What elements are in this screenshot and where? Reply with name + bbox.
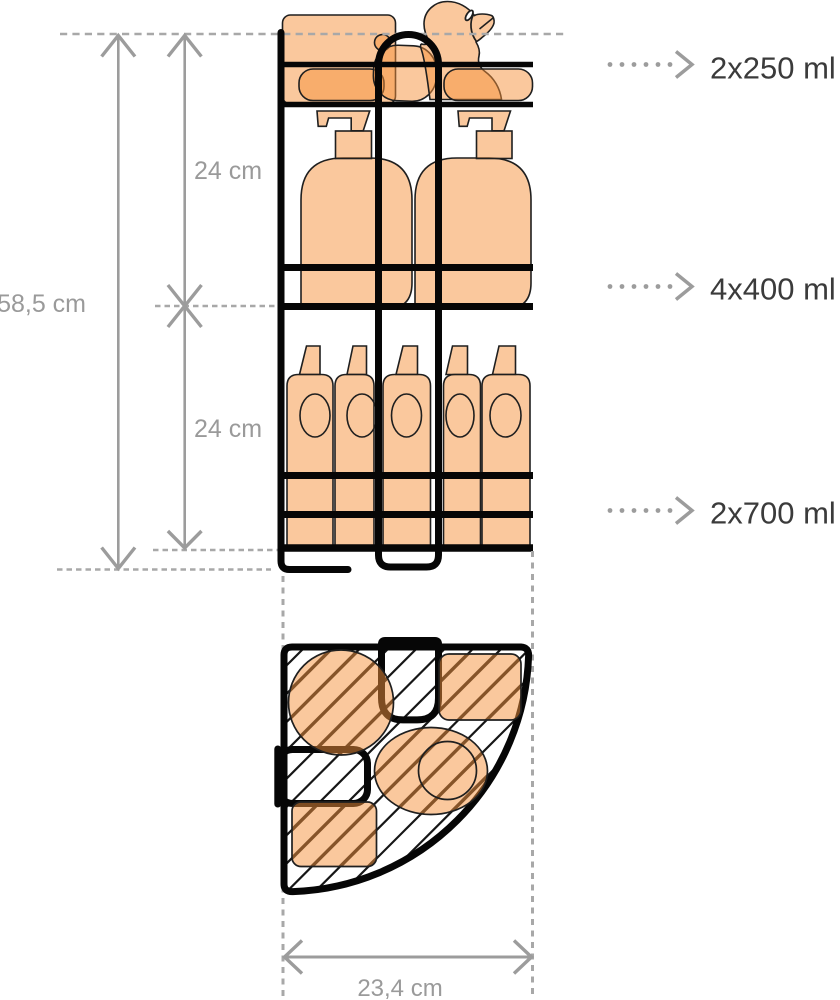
svg-text:23,4 cm: 23,4 cm (357, 975, 442, 1000)
svg-text:24 cm: 24 cm (194, 157, 262, 185)
svg-text:58,5 cm: 58,5 cm (0, 290, 86, 318)
svg-text:4x400 ml: 4x400 ml (710, 272, 836, 307)
svg-text:2x250 ml: 2x250 ml (710, 51, 836, 86)
svg-text:24 cm: 24 cm (194, 415, 262, 443)
svg-text:2x700 ml: 2x700 ml (710, 496, 836, 531)
